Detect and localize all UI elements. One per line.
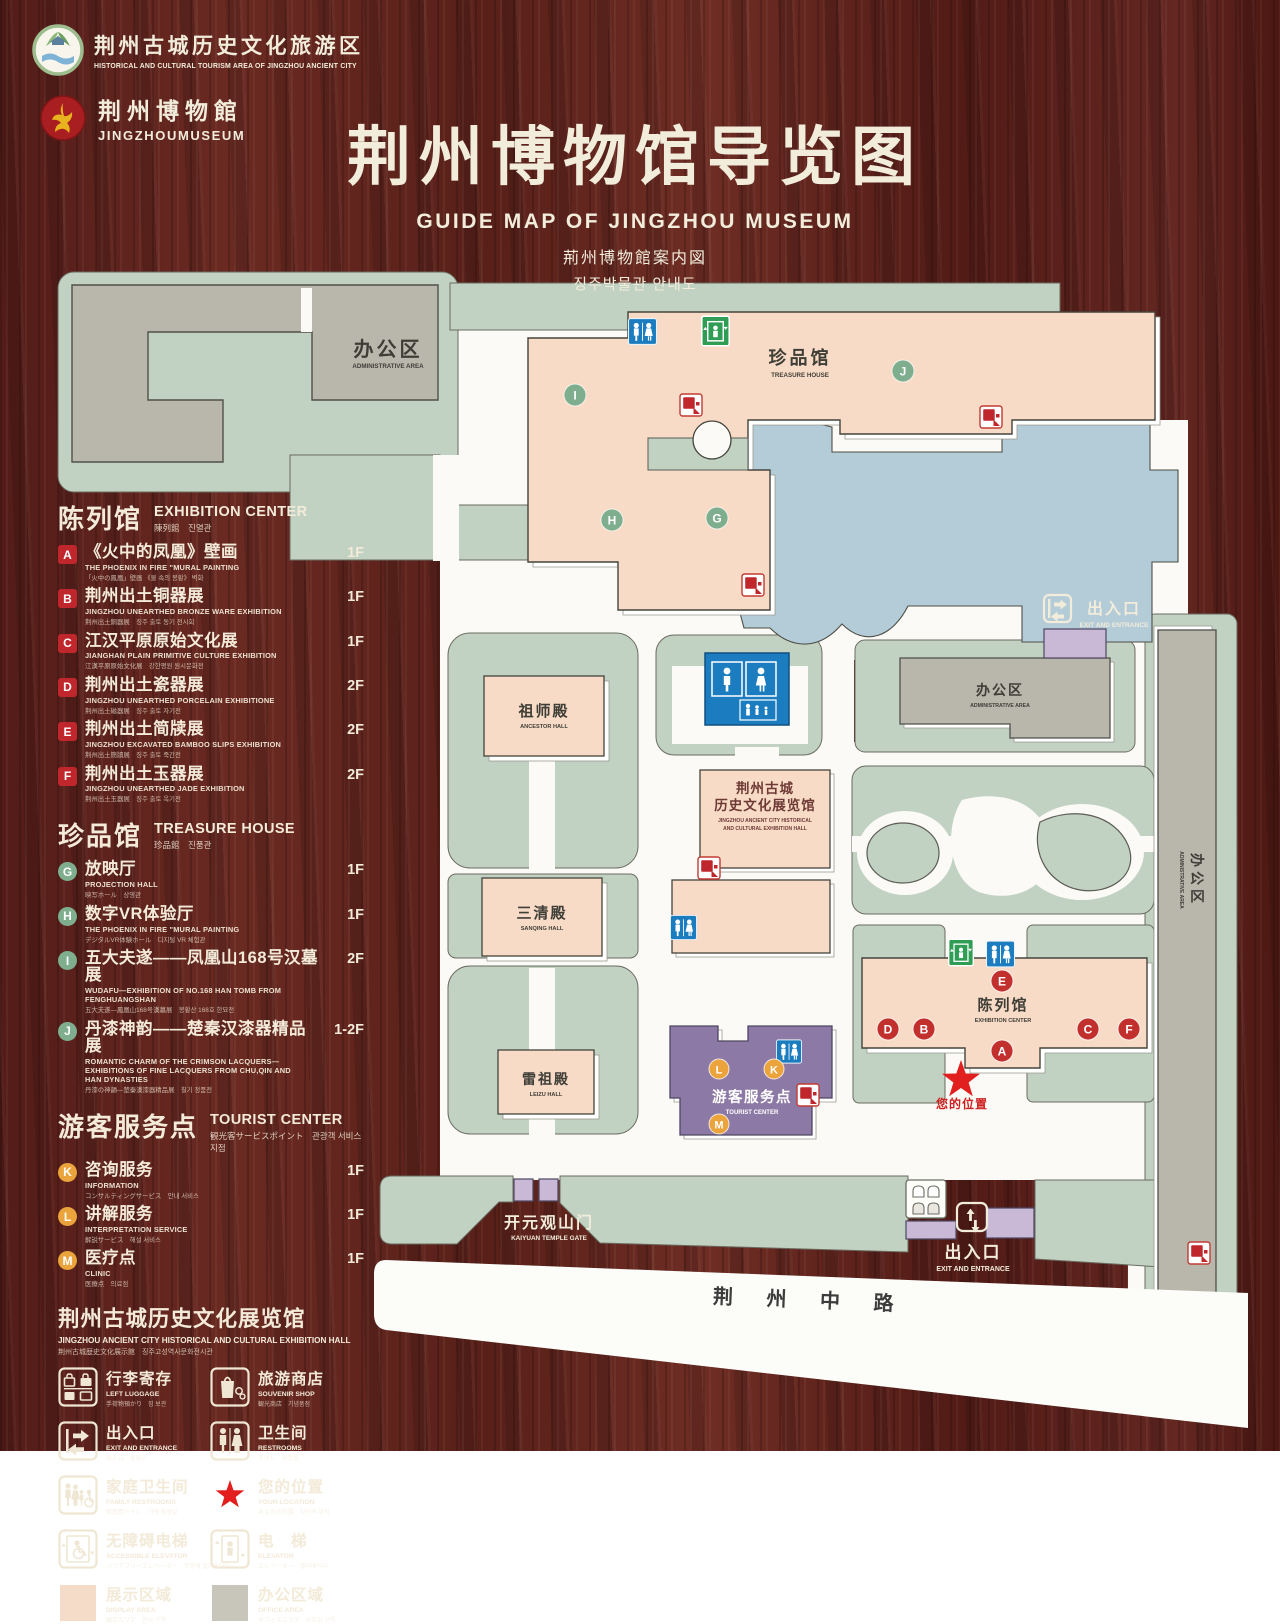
- marker-letter: J: [900, 365, 907, 379]
- icon-label-zh: 卫生间: [258, 1421, 308, 1443]
- item-zh: 数字VR体验厅: [85, 906, 239, 923]
- legend-family-restrooms: 家庭卫生间 FAMILY RESTROOMS 家庭用トイレ 가족 화장실: [58, 1475, 210, 1516]
- item-en: WUDAFU—EXHIBITION OF NO.168 HAN TOMB FRO…: [85, 986, 300, 1004]
- item-sub: 荆州出土銅器展 징주 출토 동기 전시회: [85, 617, 282, 626]
- marker-badge: B: [58, 589, 77, 608]
- item-floor: 2F: [347, 767, 364, 783]
- item-sub: 荆州出土簡牘展 징주 출토 죽간전: [85, 750, 281, 759]
- page-title: 荆州博物馆导览图: [240, 106, 1030, 198]
- marker-I: I: [564, 384, 586, 406]
- marker-D: D: [877, 1018, 899, 1040]
- icon-label-sub: トイレ 화장실: [258, 1453, 308, 1462]
- escalator-icon: [742, 574, 764, 596]
- museum-name-en: JINGZHOUMUSEUM: [98, 128, 245, 143]
- family-restrooms-icon: [58, 1475, 98, 1515]
- marker-B: B: [913, 1018, 935, 1040]
- tourism-area-name-zh: 荆州古城历史文化旅游区: [94, 30, 364, 60]
- marker-letter: A: [998, 1045, 1007, 1059]
- restroom-building: [705, 653, 789, 725]
- label-treasure-en: TREASURE HOUSE: [771, 372, 829, 379]
- label-ancestor-en: ANCESTOR HALL: [520, 724, 568, 730]
- icon-label-sub: 観光商店 기념품점: [258, 1399, 324, 1408]
- office-building-right-strip: [1154, 626, 1216, 1295]
- item-zh: 荆州出土瓷器展: [85, 677, 275, 694]
- label-hall-zh2: 历史文化展览馆: [714, 797, 816, 813]
- item-zh: 咨询服务: [85, 1162, 199, 1179]
- item-sub: コンサルティングサービス 안내 서비스: [85, 1191, 199, 1200]
- icon-label-zh: 您的位置: [258, 1475, 329, 1497]
- section-title-zh: 珍品馆: [58, 816, 142, 853]
- item-zh: 医疗点: [85, 1250, 136, 1267]
- museum-name-zh: 荆州博物館: [98, 92, 245, 126]
- marker-badge: G: [58, 862, 77, 881]
- label-sanqing-en: SANQING HALL: [521, 926, 564, 932]
- item-en: THE PHOENIX IN FIRE "MURAL PAINTING: [85, 563, 239, 572]
- label-hall-en1: JINGZHOU ANCIENT CITY HISTORICAL: [718, 818, 812, 824]
- item-floor: 1F: [347, 1207, 364, 1223]
- legend-item-C: C 江汉平原原始文化展 JIANGHAN PLAIN PRIMITIVE CUL…: [58, 633, 364, 671]
- marker-letter: K: [770, 1065, 778, 1077]
- marker-G: G: [706, 507, 728, 529]
- your-location-star-icon: [210, 1475, 250, 1515]
- legend-panel: 陈列馆 EXHIBITION CENTER 陳列館 진열관 A 《火中的凤凰》壁…: [58, 499, 364, 1624]
- icon-label-sub: 手荷物預かり 짐 보관: [106, 1399, 172, 1408]
- tourist-center-building: [670, 1026, 836, 1139]
- legend-item-K: K 咨询服务 INFORMATION コンサルティングサービス 안내 서비스 1…: [58, 1162, 364, 1200]
- marker-badge: D: [58, 678, 77, 697]
- item-en: JIANGHAN PLAIN PRIMITIVE CULTURE EXHIBIT…: [85, 651, 277, 660]
- label-admin-topleft: 办公区: [354, 337, 423, 361]
- legend-left-luggage: 行李寄存 LEFT LUGGAGE 手荷物預かり 짐 보관: [58, 1367, 210, 1408]
- marker-F: F: [1118, 1018, 1140, 1040]
- legend-item-D: D 荆州出土瓷器展 JINGZHOU UNEARTHED PORCELAIN E…: [58, 677, 364, 715]
- office-area-swatch: [210, 1583, 250, 1623]
- marker-badge: K: [58, 1163, 77, 1182]
- escalator-icon: [680, 394, 702, 416]
- item-en: INFORMATION: [85, 1181, 199, 1190]
- icon-label-en: RESTROOMS: [258, 1445, 308, 1452]
- item-sub: 五大夫遂—鳳凰山168号漢墓展 봉황산 168호 한묘전: [85, 1005, 322, 1014]
- legend-your-location: 您的位置 YOUR LOCATION あなたの位置 당신의 위치: [210, 1475, 360, 1516]
- item-en: THE PHOENIX IN FIRE "MURAL PAINTING: [85, 925, 239, 934]
- marker-letter: L: [716, 1065, 723, 1077]
- legend-accessible-elevator: 无障碍电梯 ACCESSIBLE ELEVATOR バリアフリーエレベーター 무…: [58, 1529, 210, 1570]
- restroom-icon: [629, 319, 657, 345]
- museum-logo: 荆州博物館 JINGZHOUMUSEUM: [40, 92, 245, 143]
- legend-souvenir-shop: 旅游商店 SOUVENIR SHOP 観光商店 기념품점: [210, 1367, 360, 1408]
- page-title-block: 荆州博物馆导览图 GUIDE MAP OF JINGZHOU MUSEUM 荊州…: [240, 106, 1030, 294]
- label-tourist: 游客服务点: [712, 1088, 792, 1106]
- label-exhibition-en: EXHIBITION CENTER: [975, 1018, 1032, 1024]
- escalator-icon: [980, 406, 1002, 428]
- label-exit-bottom-en: EXIT AND ENTRANCE: [936, 1266, 1010, 1273]
- icon-label-zh: 旅游商店: [258, 1367, 324, 1389]
- legend-section-exhibition-header: 陈列馆 EXHIBITION CENTER 陳列館 진열관: [58, 499, 364, 536]
- label-treasure: 珍品馆: [769, 347, 832, 368]
- item-floor: 1F: [347, 1163, 364, 1179]
- marker-letter: C: [1084, 1023, 1093, 1037]
- label-exit-top-en: EXIT AND ENTRANCE: [1080, 622, 1150, 629]
- icon-label-en: FAMILY RESTROOMS: [106, 1499, 189, 1506]
- marker-H: H: [601, 509, 623, 531]
- legend-item-J: J 丹漆神韵——楚秦汉漆器精品展 ROMANTIC CHARM OF THE C…: [58, 1021, 364, 1094]
- marker-letter: M: [714, 1120, 723, 1132]
- icon-label-en: ELEVATOR: [258, 1553, 328, 1560]
- item-sub: 荆州出土磁器展 징주 출토 자기전: [85, 706, 275, 715]
- label-admin-topleft-en: ADMINISTRATIVE AREA: [352, 363, 424, 370]
- item-sub: 医療点 의료점: [85, 1279, 136, 1288]
- restroom-icon: [987, 941, 1015, 967]
- marker-badge: I: [58, 951, 77, 970]
- label-gate: 开元观山门: [504, 1213, 594, 1232]
- item-en: ROMANTIC CHARM OF THE CRIMSON LACQUERS— …: [85, 1057, 300, 1084]
- page-subtitle-kr: 징주박물관 안내도: [240, 273, 1030, 294]
- marker-L: L: [709, 1059, 729, 1079]
- item-floor: 2F: [347, 722, 364, 738]
- icon-label-en: EXIT AND ENTRANCE: [106, 1445, 177, 1452]
- tourism-area-logo: 荆州古城历史文化旅游区 HISTORICAL AND CULTURAL TOUR…: [32, 24, 364, 76]
- hall-title-sub: 荆州古城歴史文化展示館 징주고성역사문화전시관: [58, 1347, 364, 1357]
- legend-item-A: A 《火中的凤凰》壁画 THE PHOENIX IN FIRE "MURAL P…: [58, 544, 364, 582]
- display-area-swatch: [58, 1583, 98, 1623]
- label-admin-mid: 办公区: [976, 682, 1024, 698]
- legend-item-G: G 放映厅 PROJECTION HALL 映写ホール 상영관 1F: [58, 861, 364, 899]
- elevator-icon: [702, 316, 729, 346]
- legend-section-treasure-header: 珍品馆 TREASURE HOUSE 珍品館 진품관: [58, 816, 364, 853]
- item-en: PROJECTION HALL: [85, 880, 158, 889]
- restrooms-icon: [210, 1421, 250, 1461]
- escalator-icon: [698, 857, 720, 879]
- item-sub: 江漢平原原始文化展 강한평원 원시문화전: [85, 661, 277, 670]
- label-hall-zh1: 荆州古城: [736, 780, 794, 796]
- icon-label-zh: 家庭卫生间: [106, 1475, 189, 1497]
- marker-badge: E: [58, 722, 77, 741]
- page-subtitle-en: GUIDE MAP OF JINGZHOU MUSEUM: [240, 210, 1030, 234]
- item-sub: 映写ホール 상영관: [85, 890, 158, 899]
- legend-item-H: H 数字VR体验厅 THE PHOENIX IN FIRE "MURAL PAI…: [58, 906, 364, 944]
- hall-title-en: JINGZHOU ANCIENT CITY HISTORICAL AND CUL…: [58, 1336, 364, 1345]
- legend-display-area: 展示区域 DISPLAY AREA 展示エリア 전시 구역: [58, 1583, 210, 1624]
- exit-entrance-icon: [58, 1421, 98, 1461]
- legend-item-L: L 讲解服务 INTERPRETATION SERVICE 解説サービス 해설 …: [58, 1206, 364, 1244]
- label-admin-right-en: ADMINISTRATIVE AREA: [1178, 851, 1184, 909]
- marker-letter: B: [920, 1023, 929, 1037]
- marker-letter: F: [1125, 1023, 1132, 1037]
- icon-label-sub: エレベーター 엘리베이터: [258, 1561, 328, 1570]
- label-admin-mid-en: ADMINISTRATIVE AREA: [970, 703, 1030, 709]
- marker-letter: G: [712, 512, 721, 526]
- legend-section-tourist-header: 游客服务点 TOURIST CENTER 観光客サービスポイント 관광객 서비스…: [58, 1107, 364, 1154]
- icon-label-en: OFFICE AREA: [258, 1607, 335, 1614]
- restroom-icon: [670, 915, 696, 939]
- icon-label-en: LEFT LUGGAGE: [106, 1391, 172, 1398]
- icon-label-sub: あなたの位置 당신의 위치: [258, 1507, 329, 1516]
- item-en: JINGZHOU UNEARTHED PORCELAIN EXHIBITIONE: [85, 696, 275, 705]
- item-zh: 荆州出土玉器展: [85, 766, 245, 783]
- item-sub: デジタルVR体験ホール 디지털 VR 체험관: [85, 935, 239, 944]
- page-subtitle-jp: 荊州博物館案内図: [240, 244, 1030, 268]
- label-sanqing: 三清殿: [516, 904, 567, 922]
- icon-label-sub: 家庭用トイレ 가족 화장실: [106, 1507, 189, 1516]
- marker-badge: F: [58, 767, 77, 786]
- label-gate-en: KAIYUAN TEMPLE GATE: [511, 1235, 588, 1242]
- label-leizu: 雷祖殿: [522, 1071, 570, 1087]
- escalator-icon: [797, 1084, 819, 1106]
- section-title-zh: 陈列馆: [58, 499, 142, 536]
- label-your-location: 您的位置: [936, 1096, 988, 1111]
- icon-label-en: SOUVENIR SHOP: [258, 1391, 324, 1398]
- label-exit-bottom: 出入口: [945, 1242, 1002, 1262]
- marker-badge: M: [58, 1251, 77, 1270]
- marker-A: A: [991, 1040, 1013, 1062]
- icon-label-sub: 展示エリア 전시 구역: [106, 1615, 172, 1624]
- marker-J: J: [892, 360, 914, 382]
- marker-badge: A: [58, 545, 77, 564]
- item-en: JINGZHOU EXCAVATED BAMBOO SLIPS EXHIBITI…: [85, 740, 281, 749]
- legend-item-F: F 荆州出土玉器展 JINGZHOU UNEARTHED JADE EXHIBI…: [58, 766, 364, 804]
- legend-restrooms: 卫生间 RESTROOMS トイレ 화장실: [210, 1421, 360, 1462]
- tourism-area-name-en: HISTORICAL AND CULTURAL TOURISM AREA OF …: [94, 63, 364, 70]
- item-en: INTERPRETATION SERVICE: [85, 1225, 188, 1234]
- legend-item-E: E 荆州出土简牍展 JINGZHOU EXCAVATED BAMBOO SLIP…: [58, 721, 364, 759]
- label-hall-en2: AND CULTURAL EXHIBITION HALL: [723, 826, 807, 832]
- marker-letter: E: [998, 975, 1006, 989]
- marker-letter: H: [608, 514, 617, 528]
- icon-label-zh: 办公区域: [258, 1583, 335, 1605]
- left-luggage-icon: [58, 1367, 98, 1407]
- tourism-area-emblem-icon: [32, 24, 84, 76]
- legend-elevator: 电 梯 ELEVATOR エレベーター 엘리베이터: [210, 1529, 360, 1570]
- item-floor: 1F: [347, 1251, 364, 1267]
- item-sub: 「火中の鳳凰」壁画 《불 속의 봉황》 벽화: [85, 573, 239, 582]
- icon-label-zh: 展示区域: [106, 1583, 172, 1605]
- icon-label-zh: 出入口: [106, 1421, 177, 1443]
- marker-badge: H: [58, 907, 77, 926]
- exit-icon-bottom: [957, 1203, 987, 1233]
- item-zh: 放映厅: [85, 861, 158, 878]
- souvenir-shop-icon: [210, 1367, 250, 1407]
- icon-label-sub: 出入口 출입구: [106, 1453, 177, 1462]
- item-zh: 讲解服务: [85, 1206, 188, 1223]
- legend-item-B: B 荆州出土铜器展 JINGZHOU UNEARTHED BRONZE WARE…: [58, 588, 364, 626]
- label-admin-right: 办公区: [1189, 853, 1205, 907]
- section-title-sub: 陳列館 진열관: [154, 522, 307, 534]
- marker-M: M: [709, 1114, 729, 1134]
- item-sub: 荆州出土玉器展 징주 출토 옥기전: [85, 794, 245, 803]
- legend-item-M: M 医疗点 CLINIC 医療点 의료점 1F: [58, 1250, 364, 1288]
- label-ancestor: 祖师殿: [517, 702, 569, 720]
- icon-label-zh: 行李寄存: [106, 1367, 172, 1389]
- item-floor: 1F: [347, 862, 364, 878]
- item-zh: 《火中的凤凰》壁画: [85, 544, 239, 561]
- marker-letter: D: [884, 1023, 893, 1037]
- label-tourist-en: TOURIST CENTER: [726, 1110, 779, 1116]
- icon-label-zh: 电 梯: [258, 1529, 328, 1551]
- legend-icon-grid: 行李寄存 LEFT LUGGAGE 手荷物預かり 짐 보관 旅游商店 SOUVE…: [58, 1367, 364, 1624]
- road: [374, 1260, 1248, 1428]
- hall-title-zh: 荆州古城历史文化展览馆: [58, 1302, 364, 1333]
- marker-badge: L: [58, 1207, 77, 1226]
- legend-item-I: I 五大夫遂——凤凰山168号汉墓展 WUDAFU—EXHIBITION OF …: [58, 950, 364, 1014]
- escalator-icon: [1188, 1242, 1210, 1264]
- item-zh: 丹漆神韵——楚秦汉漆器精品展: [85, 1021, 322, 1056]
- section-title-sub: 珍品館 진품관: [154, 839, 295, 851]
- item-en: JINGZHOU UNEARTHED JADE EXHIBITION: [85, 784, 245, 793]
- icon-label-sub: バリアフリーエレベーター 무장애 엘리베이터: [106, 1561, 230, 1570]
- item-floor: 1F: [347, 634, 364, 650]
- item-floor: 1F: [347, 545, 364, 561]
- accessible-elevator-icon: [58, 1529, 98, 1569]
- item-zh: 荆州出土铜器展: [85, 588, 282, 605]
- item-floor: 2F: [347, 678, 364, 694]
- marker-E: E: [991, 970, 1013, 992]
- section-title-sub: 観光客サービスポイント 관광객 서비스 지점: [210, 1130, 364, 1154]
- section-title-zh: 游客服务点: [58, 1107, 198, 1144]
- restroom-icon: [776, 1040, 801, 1063]
- item-zh: 荆州出土简牍展: [85, 721, 281, 738]
- elevator-icon: [949, 939, 974, 965]
- marker-C: C: [1077, 1018, 1099, 1040]
- item-sub: 丹漆の神韻—楚秦漢漆器精品展 칠기 정품전: [85, 1085, 322, 1094]
- item-zh: 五大夫遂——凤凰山168号汉墓展: [85, 950, 322, 985]
- item-floor: 1F: [347, 589, 364, 605]
- marker-letter: I: [573, 389, 576, 403]
- item-floor: 1-2F: [334, 1022, 364, 1038]
- item-floor: 2F: [347, 951, 364, 967]
- item-sub: 解説サービス 해설 서비스: [85, 1235, 188, 1244]
- section-title-en: TOURIST CENTER: [210, 1112, 364, 1128]
- history-hall-title-block: 荆州古城历史文化展览馆 JINGZHOU ANCIENT CITY HISTOR…: [58, 1302, 364, 1357]
- icon-label-en: YOUR LOCATION: [258, 1499, 329, 1506]
- item-en: JINGZHOU UNEARTHED BRONZE WARE EXHIBITIO…: [85, 607, 282, 616]
- ticket-booth-icon: [906, 1180, 946, 1218]
- legend-exit-entrance: 出入口 EXIT AND ENTRANCE 出入口 출입구: [58, 1421, 210, 1462]
- label-exhibition: 陈列馆: [977, 996, 1028, 1014]
- icon-label-sub: オフィスエリア 사무실 구역: [258, 1615, 335, 1624]
- marker-K: K: [764, 1059, 784, 1079]
- marker-badge: C: [58, 634, 77, 653]
- section-title-en: TREASURE HOUSE: [154, 821, 295, 837]
- label-leizu-en: LEIZU HALL: [530, 1092, 563, 1098]
- item-floor: 1F: [347, 907, 364, 923]
- icon-label-en: DISPLAY AREA: [106, 1607, 172, 1614]
- item-en: CLINIC: [85, 1269, 136, 1278]
- legend-office-area: 办公区域 OFFICE AREA オフィスエリア 사무실 구역: [210, 1583, 360, 1624]
- museum-emblem-icon: [40, 95, 86, 141]
- section-title-en: EXHIBITION CENTER: [154, 504, 307, 520]
- item-zh: 江汉平原原始文化展: [85, 633, 277, 650]
- marker-badge: J: [58, 1022, 77, 1041]
- label-exit-top: 出入口: [1087, 599, 1141, 618]
